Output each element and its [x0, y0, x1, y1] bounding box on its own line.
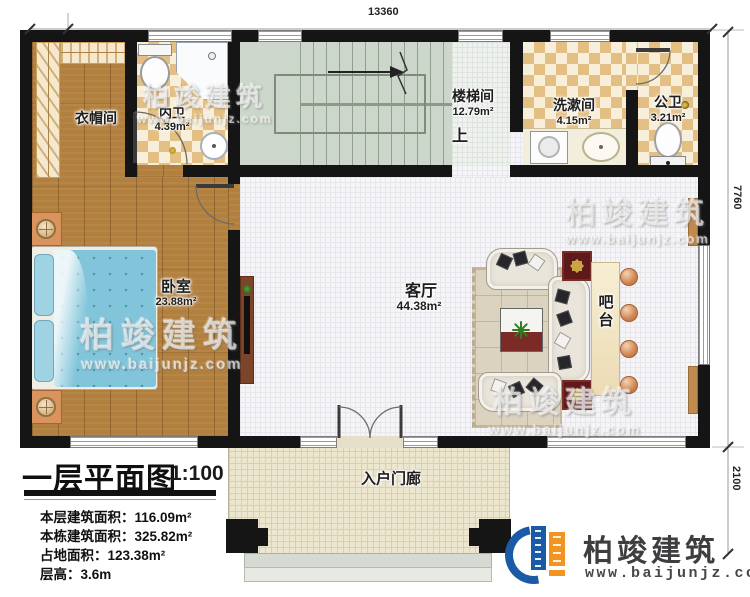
window-top-1	[148, 30, 232, 42]
title-underline-thin	[24, 499, 216, 500]
logo-building-orange-base	[549, 570, 565, 576]
bar-stool-2	[620, 304, 638, 322]
floor-washroom-gap	[626, 42, 638, 90]
window-living-bottom-2	[403, 436, 438, 448]
wall-left	[20, 30, 32, 448]
floor-washroom-entry	[510, 132, 523, 165]
wall-right	[698, 30, 710, 448]
logo-icon	[505, 520, 577, 590]
stat-label: 本层建筑面积：	[40, 510, 135, 525]
bar-stool-4	[620, 376, 638, 394]
stat-label: 占地面积：	[40, 548, 108, 563]
room-area-bedroom: 23.88m²	[156, 296, 197, 308]
logo-brand-text: 柏竣建筑	[583, 526, 719, 570]
wardrobe-left	[36, 42, 60, 178]
porch-column-left	[226, 519, 258, 553]
logo: 柏竣建筑 www.baijunjz.com	[505, 518, 748, 594]
room-area-washroom: 4.15m²	[557, 115, 592, 127]
lamp-bottom-icon	[36, 397, 56, 417]
wall-stair-washroom	[510, 42, 523, 132]
window-top-2	[258, 30, 302, 42]
stat-label: 层高：	[40, 567, 81, 582]
stat-row: 本层建筑面积：116.09m²	[40, 506, 192, 526]
stat-row: 层高：3.6m	[40, 563, 111, 583]
washroom-sink-dot	[599, 145, 603, 149]
title-underline-thick	[24, 490, 216, 496]
floor-hall-passage	[452, 165, 510, 177]
pillow-2	[34, 320, 54, 382]
plant-icon	[511, 320, 531, 340]
room-label-living-room: 客厅	[405, 277, 437, 301]
stat-value: 123.38m²	[108, 548, 166, 563]
stat-value: 325.82m²	[135, 529, 193, 544]
title-block: 一层平面图 1:100 本层建筑面积：116.09m² 本栋建筑面积：325.8…	[0, 450, 230, 597]
room-label-stairwell: 楼梯间	[452, 86, 494, 106]
stat-value: 3.6m	[81, 567, 112, 582]
bar-stool-1	[620, 268, 638, 286]
toilet-bowl-public-icon	[654, 122, 682, 158]
stat-value: 116.09m²	[135, 510, 192, 525]
room-label-bedroom: 卧室	[161, 276, 191, 297]
room-label-cloakroom: 衣帽间	[75, 108, 117, 128]
window-right-bar	[698, 245, 710, 365]
porch-step-2	[244, 567, 492, 582]
plan-scale: 1:100	[170, 462, 224, 486]
window-bedroom-bottom	[70, 436, 198, 448]
room-area-inner-bath: 4.39m²	[155, 121, 190, 133]
window-living-bottom-3	[547, 436, 686, 448]
stat-row: 占地面积：123.38m²	[40, 544, 165, 564]
floor-plan: 13360 7760 2100 衣帽间 内卫 4.39m² 楼梯间 12.79m…	[0, 0, 750, 597]
tv-plant-icon	[243, 285, 251, 293]
stair-railing	[274, 74, 426, 134]
doorway-bedroom	[228, 184, 240, 230]
stair-direction-label: 上	[452, 122, 468, 146]
dim-right-upper-label: 7760	[731, 185, 743, 245]
window-top-3	[458, 30, 503, 42]
floor-porch	[228, 445, 510, 553]
logo-building-blue	[531, 526, 546, 570]
bar-stool-3	[620, 340, 638, 358]
washing-machine-drum	[538, 136, 560, 158]
doorway-inner-bath	[137, 165, 183, 177]
dim-top-label: 13360	[368, 6, 399, 18]
stat-row: 本栋建筑面积：325.82m²	[40, 525, 192, 545]
door-stop-inner	[169, 147, 176, 154]
side-table-top	[562, 251, 592, 281]
bar-back-cabinet-top	[688, 198, 698, 246]
sink-inner-dot	[212, 144, 216, 148]
logo-url-text: www.baijunjz.com	[585, 565, 750, 582]
stat-label: 本栋建筑面积：	[40, 529, 135, 544]
towel-ring-icon	[681, 101, 689, 109]
room-label-porch: 入户门廊	[361, 468, 421, 489]
room-label-inner-bath: 内卫	[159, 103, 185, 122]
pillow-1	[34, 254, 54, 316]
cushion	[557, 355, 572, 370]
room-label-public-bath: 公卫	[654, 92, 682, 112]
wall-bedroom-living	[228, 42, 240, 436]
bed-blanket-fold	[54, 250, 88, 387]
bar-back-cabinet-bottom	[688, 366, 698, 414]
porch-column-right-stub	[469, 528, 479, 546]
tv-icon	[244, 296, 250, 354]
wall-washroom-publicbath	[626, 90, 638, 177]
wall-under-washrooms	[510, 165, 710, 177]
dim-right-lower-label: 2100	[730, 466, 742, 522]
shower-head-icon	[208, 52, 216, 60]
porch-column-left-stub	[258, 528, 268, 546]
room-label-washroom: 洗漱间	[553, 95, 595, 115]
wardrobe-top	[60, 42, 128, 64]
side-table-bottom	[562, 380, 592, 410]
toilet-tank-inner	[138, 44, 172, 56]
room-label-bar: 吧台	[595, 294, 616, 330]
room-area-stairwell: 12.79m²	[453, 106, 494, 118]
wall-under-stairs	[240, 165, 452, 177]
room-area-living-room: 44.38m²	[397, 299, 442, 313]
lamp-top-icon	[36, 219, 56, 239]
toilet-bowl-inner-icon	[140, 56, 170, 90]
logo-building-orange	[549, 532, 565, 566]
doorway-entrance	[337, 436, 403, 448]
room-area-public-bath: 3.21m²	[651, 112, 686, 124]
window-living-bottom-1	[300, 436, 337, 448]
window-top-4	[550, 30, 610, 42]
wall-cloak-innerbath	[125, 42, 137, 165]
